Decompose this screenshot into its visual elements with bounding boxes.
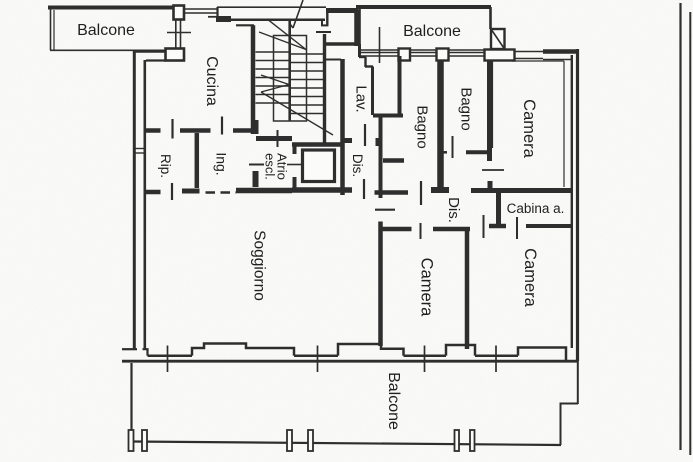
svg-text:Camera: Camera: [418, 258, 436, 318]
svg-text:Dis.: Dis.: [445, 197, 462, 223]
svg-text:Ing.: Ing.: [214, 152, 230, 175]
svg-text:Dis.: Dis.: [350, 154, 365, 177]
svg-text:Rip.: Rip.: [158, 154, 173, 178]
svg-text:escl.: escl.: [263, 153, 278, 180]
svg-text:Balcone: Balcone: [385, 372, 402, 430]
svg-text:Balcone: Balcone: [77, 22, 135, 39]
svg-text:Lav.: Lav.: [353, 85, 370, 112]
svg-text:Camera: Camera: [521, 248, 539, 308]
svg-text:Soggiorno: Soggiorno: [251, 230, 268, 301]
svg-text:Bagno: Bagno: [414, 105, 431, 148]
svg-text:Cabina a.: Cabina a.: [507, 201, 565, 216]
svg-text:Bagno: Bagno: [458, 87, 475, 130]
svg-text:Camera: Camera: [520, 99, 538, 159]
svg-text:Balcone: Balcone: [403, 23, 461, 40]
svg-text:Cucina: Cucina: [203, 56, 220, 106]
